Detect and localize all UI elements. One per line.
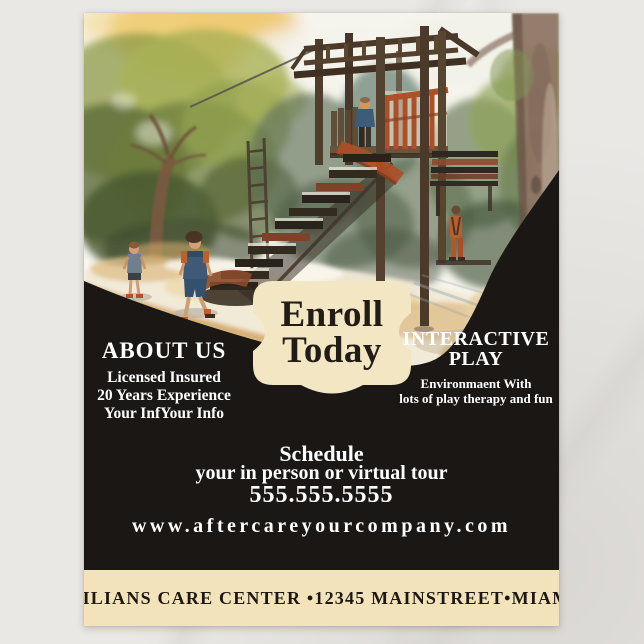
enroll-badge-text: Enroll Today xyxy=(251,279,413,387)
schedule-subheading: your in person or virtual tour xyxy=(84,464,559,483)
interactive-play-line: Environmaent With xyxy=(391,376,559,391)
about-us-line: 20 Years Experience xyxy=(88,387,240,405)
marble-backdrop: Enroll Today ABOUT US Licensed Insured 2… xyxy=(0,0,644,644)
enroll-badge: Enroll Today xyxy=(251,279,413,405)
enroll-badge-line2: Today xyxy=(282,333,382,369)
flyer-page: Enroll Today ABOUT US Licensed Insured 2… xyxy=(84,13,559,626)
about-us-section: ABOUT US Licensed Insured 20 Years Exper… xyxy=(88,339,240,423)
schedule-heading: Schedule xyxy=(84,443,559,464)
interactive-play-section: INTERACTIVE PLAY Environmaent With lots … xyxy=(391,329,559,406)
about-us-line: Your InfYour Info xyxy=(88,405,240,423)
schedule-website: www.aftercareyourcompany.com xyxy=(84,517,559,536)
about-us-lines: Licensed Insured 20 Years Experience You… xyxy=(88,369,240,423)
interactive-play-heading-line2: PLAY xyxy=(449,348,504,370)
interactive-play-heading-line1: INTERACTIVE xyxy=(403,328,550,350)
schedule-phone: 555.555.5555 xyxy=(84,483,559,508)
about-us-heading: ABOUT US xyxy=(88,339,240,363)
interactive-play-line: lots of play therapy and fun xyxy=(391,391,559,406)
footer-text: MILIANS CARE CENTER •12345 MAINSTREET•MI… xyxy=(84,588,559,609)
about-us-line: Licensed Insured xyxy=(88,369,240,387)
interactive-play-heading: INTERACTIVE PLAY xyxy=(391,329,559,369)
interactive-play-lines: Environmaent With lots of play therapy a… xyxy=(391,376,559,406)
schedule-section: Schedule your in person or virtual tour … xyxy=(84,443,559,536)
footer-bar: MILIANS CARE CENTER •12345 MAINSTREET•MI… xyxy=(84,570,559,626)
enroll-badge-line1: Enroll xyxy=(280,297,383,333)
